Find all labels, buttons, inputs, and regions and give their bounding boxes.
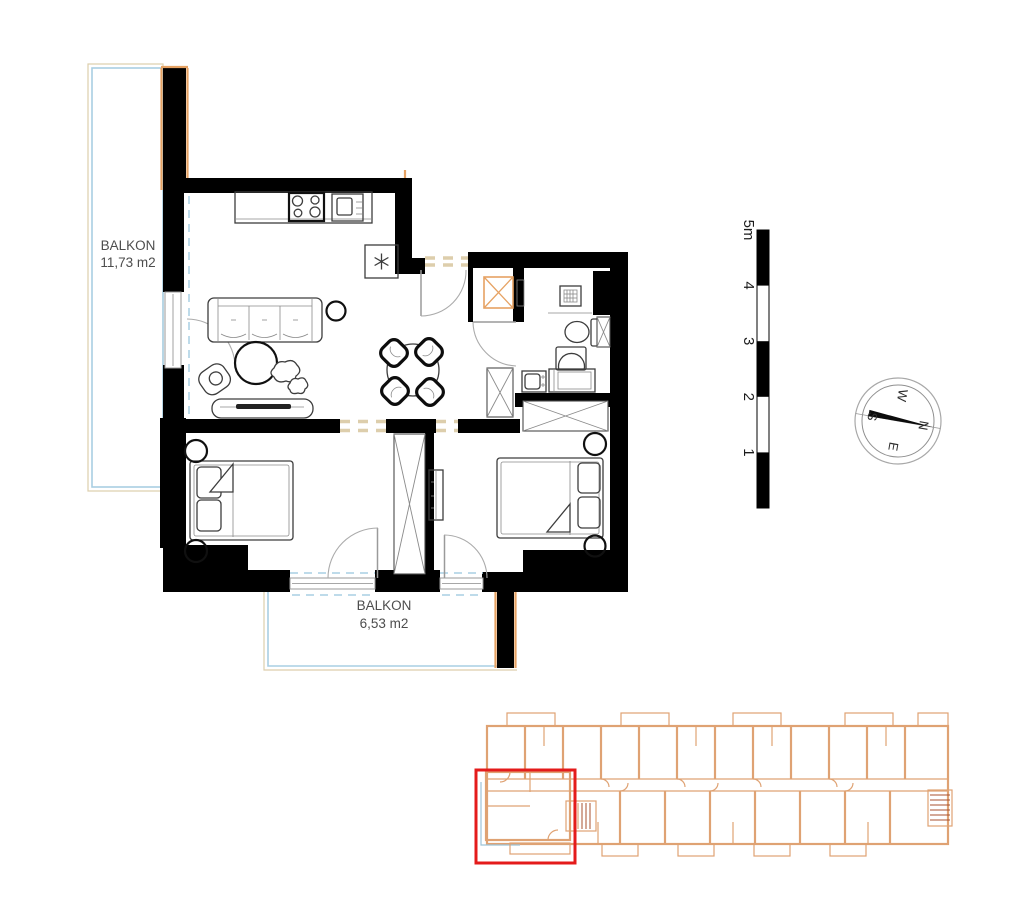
balcony-bottom: BALKON 6,53 m2 <box>264 588 517 670</box>
dining-chair <box>413 336 446 369</box>
nightstand <box>185 440 207 462</box>
scale-bar: 5m 4 3 2 1 <box>740 220 769 508</box>
bed-1 <box>190 461 293 540</box>
living-room <box>195 298 345 418</box>
compass-east: E <box>885 441 901 452</box>
tv-console <box>212 399 313 418</box>
compass: N E S W <box>850 378 946 464</box>
laundry-basket-icon <box>556 347 586 370</box>
compass-north: N <box>915 420 931 432</box>
plant <box>271 361 308 394</box>
sink-icon <box>332 194 363 221</box>
kitchen <box>235 192 398 278</box>
sofa <box>208 298 322 342</box>
dining-set <box>378 336 447 409</box>
vent-grille-icon <box>560 286 581 306</box>
floorplan-page: BALKON 11,73 m2 BALKON 6,53 m2 <box>0 0 1012 923</box>
stove-icon <box>289 193 324 221</box>
overview-balconies <box>507 713 948 856</box>
overview-stairs <box>566 790 952 831</box>
ventilation-shaft-orange <box>484 277 513 308</box>
bed-2 <box>497 458 603 538</box>
balcony-left-label: BALKON <box>101 238 156 253</box>
armchair <box>195 360 234 398</box>
floorplan-canvas: BALKON 11,73 m2 BALKON 6,53 m2 <box>0 0 1012 923</box>
bathroom-sink-icon <box>522 371 546 392</box>
scale-label-2: 2 <box>740 393 757 401</box>
toilet-icon <box>565 319 600 346</box>
washing-machine-icon <box>549 369 595 392</box>
bedroom-2 <box>429 433 606 557</box>
dining-chair <box>378 337 411 370</box>
scale-label-4: 4 <box>740 281 757 289</box>
compass-south: S <box>864 411 880 422</box>
dining-chair <box>379 375 412 408</box>
fridge-icon <box>365 245 398 278</box>
balcony-left-area: 11,73 m2 <box>100 255 155 270</box>
building-overview <box>476 713 952 863</box>
hallway <box>484 277 513 417</box>
scale-label-5m: 5m <box>740 220 757 241</box>
bathroom-shaft <box>597 317 610 347</box>
scale-label-1: 1 <box>740 448 757 456</box>
balcony-bottom-label: BALKON <box>357 598 412 613</box>
wardrobe-bedroom2 <box>523 401 608 431</box>
coffee-table <box>235 342 277 384</box>
highlighted-apartment-unit <box>481 772 570 854</box>
bedroom-1 <box>185 440 293 562</box>
balcony-left: BALKON 11,73 m2 <box>88 64 163 491</box>
scale-label-3: 3 <box>740 337 757 345</box>
apartment-highlight-box[interactable] <box>476 770 575 863</box>
nightstand <box>584 433 606 455</box>
wardrobe-center <box>394 434 425 574</box>
shaft-box <box>487 368 513 417</box>
compass-west: W <box>894 388 911 403</box>
side-table <box>327 302 346 321</box>
exterior-walls <box>160 68 628 668</box>
balcony-bottom-area: 6,53 m2 <box>360 616 409 631</box>
dining-chair <box>414 376 447 409</box>
